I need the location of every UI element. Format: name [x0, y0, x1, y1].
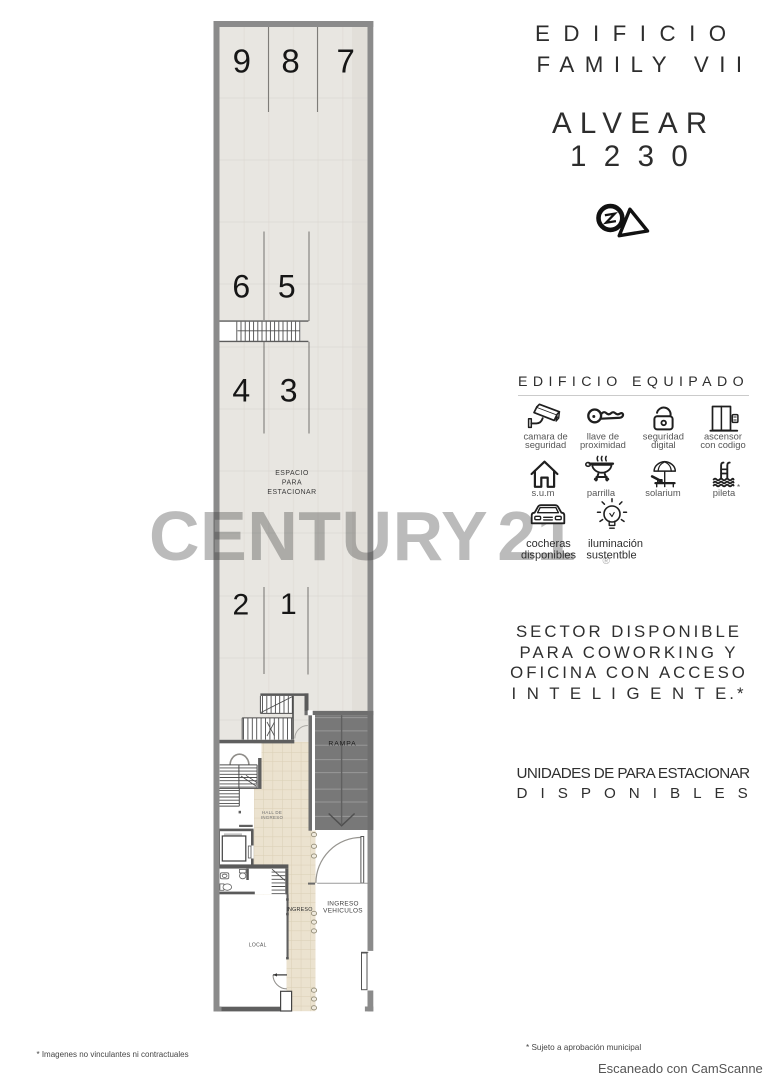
svg-text:digital: digital	[651, 439, 676, 450]
svg-text:2: 2	[232, 589, 249, 622]
svg-text:pileta: pileta	[713, 487, 736, 498]
svg-text:9: 9	[233, 43, 251, 80]
svg-text:sustentble: sustentble	[586, 550, 636, 562]
svg-text:PARA: PARA	[282, 480, 302, 487]
svg-text:ESTACIONAR: ESTACIONAR	[267, 489, 316, 496]
svg-text:proximidad: proximidad	[580, 439, 626, 450]
svg-text:cocheras: cocheras	[526, 538, 571, 550]
svg-text:RAMPA: RAMPA	[328, 741, 356, 748]
svg-text:4: 4	[232, 373, 250, 409]
svg-text:INGRESO: INGRESO	[261, 815, 284, 820]
svg-text:iluminación: iluminación	[588, 538, 643, 550]
svg-text:INGRESO: INGRESO	[327, 900, 359, 907]
svg-text:ESPACIO: ESPACIO	[275, 470, 309, 477]
svg-text:seguridad: seguridad	[525, 439, 566, 450]
svg-text:*: *	[737, 483, 740, 492]
svg-text:VEHICULOS: VEHICULOS	[323, 907, 363, 914]
svg-text:7: 7	[337, 43, 355, 80]
svg-text:6: 6	[232, 269, 250, 305]
svg-text:1: 1	[280, 588, 297, 621]
svg-text:parrilla: parrilla	[587, 487, 616, 498]
svg-text:con codigo: con codigo	[700, 439, 745, 450]
svg-text:solarium: solarium	[645, 487, 681, 498]
svg-text:5: 5	[278, 269, 296, 305]
svg-text:3: 3	[280, 373, 298, 409]
svg-text:LOCAL: LOCAL	[249, 942, 267, 948]
svg-text:INGRESO: INGRESO	[286, 907, 312, 913]
svg-text:s.u.m: s.u.m	[532, 487, 555, 498]
svg-text:8: 8	[281, 43, 299, 80]
svg-text:disponibles: disponibles	[521, 550, 577, 562]
